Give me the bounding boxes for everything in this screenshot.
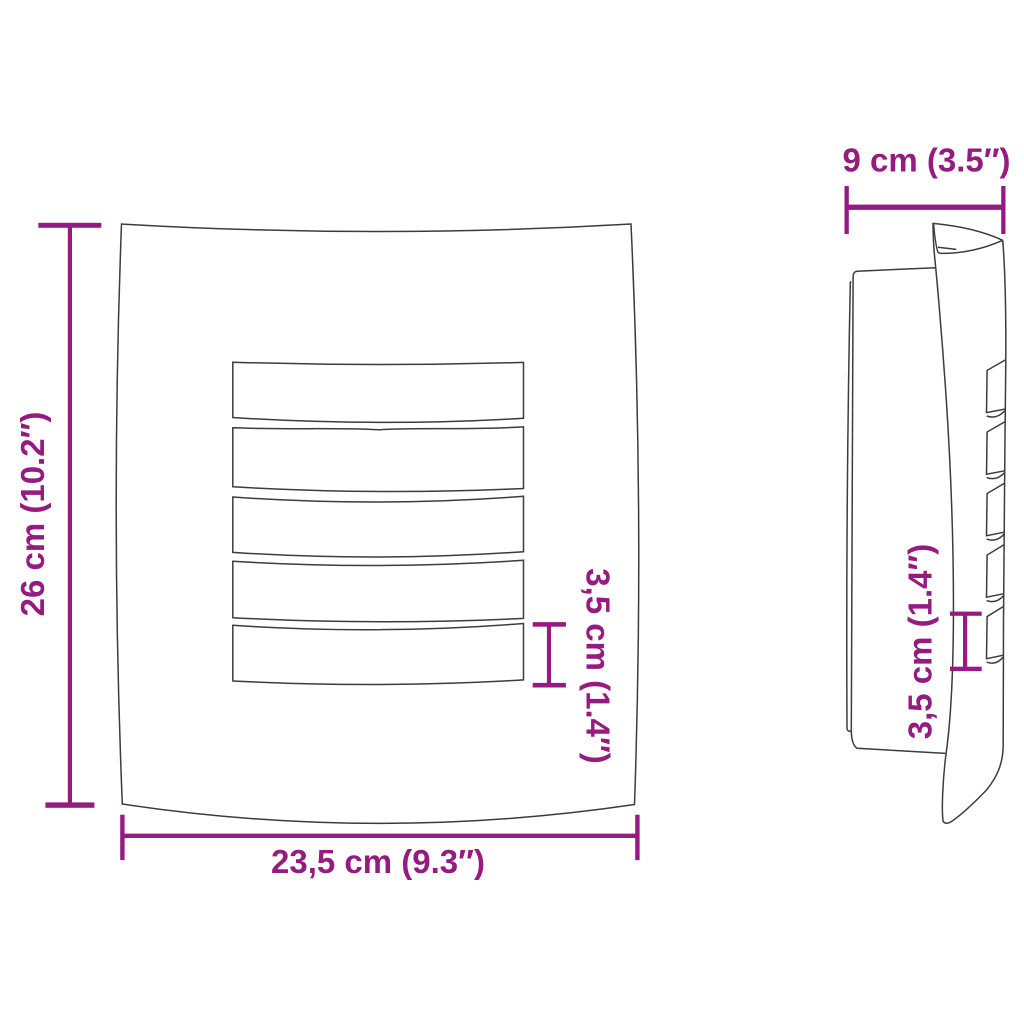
svg-text:23,5 cm (9.3″): 23,5 cm (9.3″) [271,843,485,880]
svg-text:3,5 cm (1.4″): 3,5 cm (1.4″) [902,544,939,740]
svg-text:26 cm (10.2″): 26 cm (10.2″) [14,412,51,617]
svg-text:3,5 cm (1.4″): 3,5 cm (1.4″) [580,568,617,764]
svg-text:9 cm (3.5″): 9 cm (3.5″) [842,142,1010,179]
